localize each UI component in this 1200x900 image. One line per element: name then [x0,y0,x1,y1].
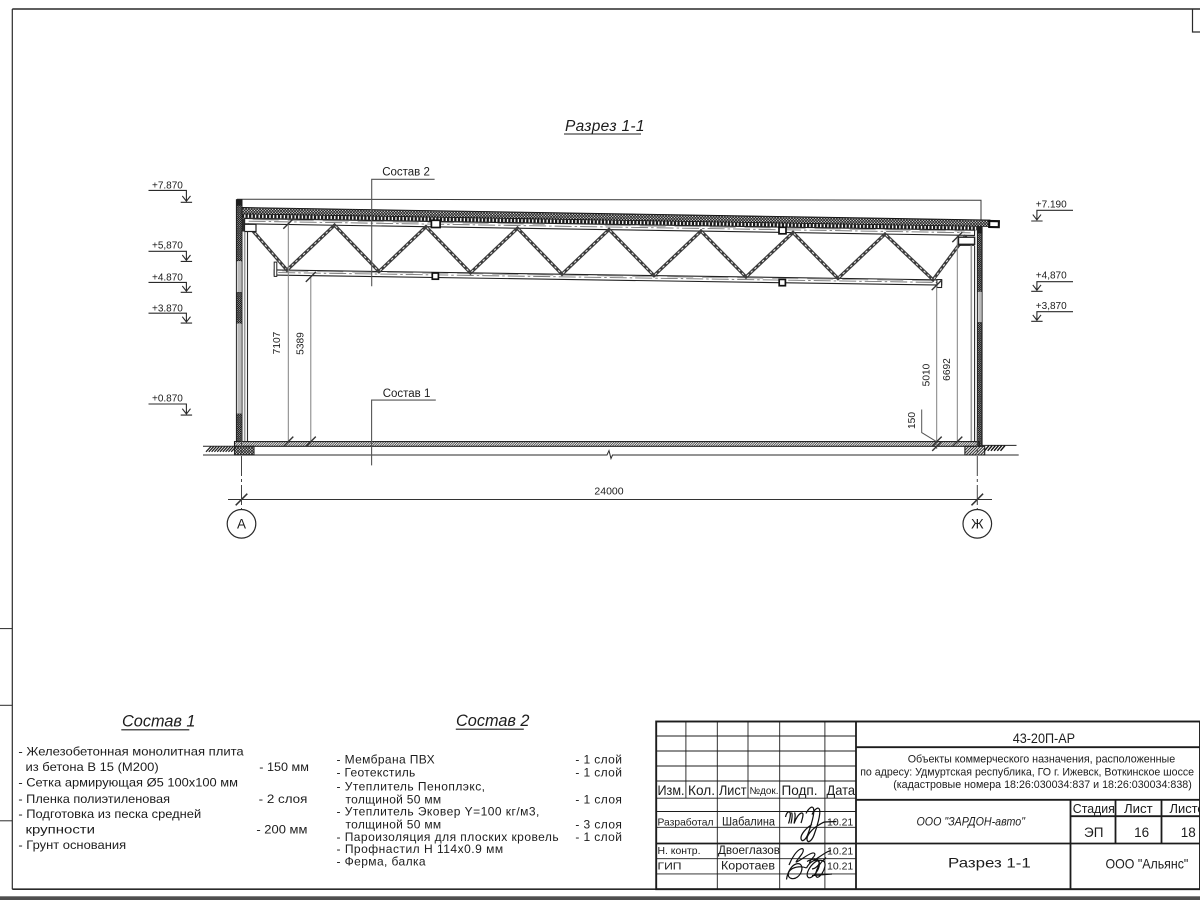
svg-text:ГИП: ГИП [658,861,682,873]
svg-text:7107: 7107 [272,331,283,354]
svg-text:10.21: 10.21 [827,817,853,829]
svg-text:из бетона В 15 (М200): из бетона В 15 (М200) [26,760,159,774]
svg-text:+7.190: +7.190 [1036,200,1067,211]
svg-text:5389: 5389 [296,332,307,355]
svg-text:Разработал: Разработал [658,817,714,829]
svg-text:43-20П-АР: 43-20П-АР [1013,731,1075,746]
svg-text:- 1 слой: - 1 слой [575,830,622,844]
svg-text:Разрез 1-1: Разрез 1-1 [948,855,1031,871]
svg-text:ООО "ЗАРДОН-авто": ООО "ЗАРДОН-авто" [917,815,1026,829]
svg-text:+5,870: +5,870 [152,240,183,251]
svg-text:- Сетка армирующая Ø5 100х100: - Сетка армирующая Ø5 100х100 мм [18,776,238,790]
svg-text:Лист: Лист [1124,801,1153,816]
svg-text:Ж: Ж [971,517,984,532]
svg-text:- 1 слой: - 1 слой [575,752,622,766]
svg-text:Состав 2: Состав 2 [382,167,430,179]
svg-text:- 150 мм: - 150 мм [259,760,309,774]
svg-text:+3,870: +3,870 [1036,301,1067,312]
svg-text:Объекты коммерческого назначен: Объекты коммерческого назначения, распол… [908,754,1175,766]
svg-text:6692: 6692 [942,358,953,381]
svg-text:- Мембрана ПВХ: - Мембрана ПВХ [337,752,435,766]
svg-text:16: 16 [1134,825,1149,840]
svg-text:Состав 1: Состав 1 [383,388,431,400]
svg-text:- Ферма, балка: - Ферма, балка [337,854,426,868]
svg-text:крупности: крупности [26,823,96,837]
svg-text:- 2 слоя: - 2 слоя [259,792,308,806]
svg-text:Подп.: Подп. [782,782,818,798]
svg-text:ЭП: ЭП [1084,825,1103,840]
svg-text:Изм.: Изм. [658,782,685,798]
svg-text:+7.870: +7.870 [152,180,183,191]
svg-text:Кол.: Кол. [688,782,715,798]
svg-text:Листов: Листов [1170,801,1200,816]
svg-text:- Геотекстиль: - Геотекстиль [337,766,416,780]
svg-text:Стадия: Стадия [1073,801,1115,816]
svg-text:№док.: №док. [750,786,779,797]
svg-text:Состав 2: Состав 2 [456,712,529,730]
svg-text:10.21: 10.21 [827,861,853,873]
svg-text:- Утеплитель Пеноплэкс,: - Утеплитель Пеноплэкс, [337,779,486,793]
svg-text:18: 18 [1181,825,1196,840]
svg-text:Шабалина: Шабалина [722,817,776,829]
svg-text:+0.870: +0.870 [152,394,183,405]
svg-text:Состав 1: Состав 1 [122,713,195,731]
svg-text:- 1 слой: - 1 слой [575,766,622,780]
svg-text:- Подготовка из песка средней: - Подготовка из песка средней [18,807,201,821]
svg-text:Разрез 1-1: Разрез 1-1 [565,118,645,135]
svg-text:24000: 24000 [594,486,623,498]
svg-text:Коротаев: Коротаев [721,861,775,873]
svg-text:Дата: Дата [827,782,856,798]
svg-text:- Грунт основания: - Грунт основания [18,838,126,852]
svg-text:(кадастровые номера 18:26:0300: (кадастровые номера 18:26:030034:837 и 1… [893,779,1192,791]
svg-text:Н. контр.: Н. контр. [658,845,701,857]
svg-text:- 1 слоя: - 1 слоя [575,792,622,806]
svg-text:- Железобетонная монолитная п: - Железобетонная монолитная плита [18,745,244,759]
svg-text:по адресу: Удмуртская республи: по адресу: Удмуртская республика, ГО г. … [860,766,1194,778]
svg-text:Лист: Лист [719,782,747,798]
svg-text:Двоеглазов: Двоеглазов [718,845,780,857]
svg-text:150: 150 [907,412,918,429]
svg-text:+4,870: +4,870 [1036,271,1067,282]
svg-text:5010: 5010 [921,363,932,386]
svg-text:А: А [237,517,246,532]
svg-text:10.21: 10.21 [827,845,853,857]
svg-text:- Пленка полиэтиленовая: - Пленка полиэтиленовая [18,792,170,806]
svg-text:- 200 мм: - 200 мм [256,823,307,837]
svg-text:ООО "Альянс": ООО "Альянс" [1106,857,1189,872]
